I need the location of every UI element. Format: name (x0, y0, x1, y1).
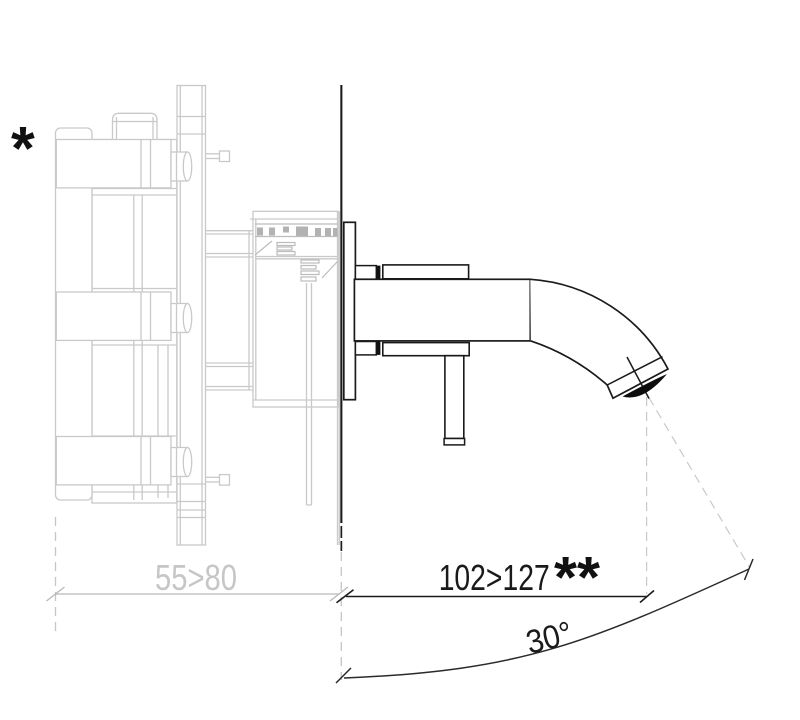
svg-text:55>80: 55>80 (155, 557, 237, 598)
svg-text:**: ** (554, 546, 600, 611)
svg-text:102>127: 102>127 (439, 557, 550, 598)
svg-text:*: * (11, 114, 35, 182)
